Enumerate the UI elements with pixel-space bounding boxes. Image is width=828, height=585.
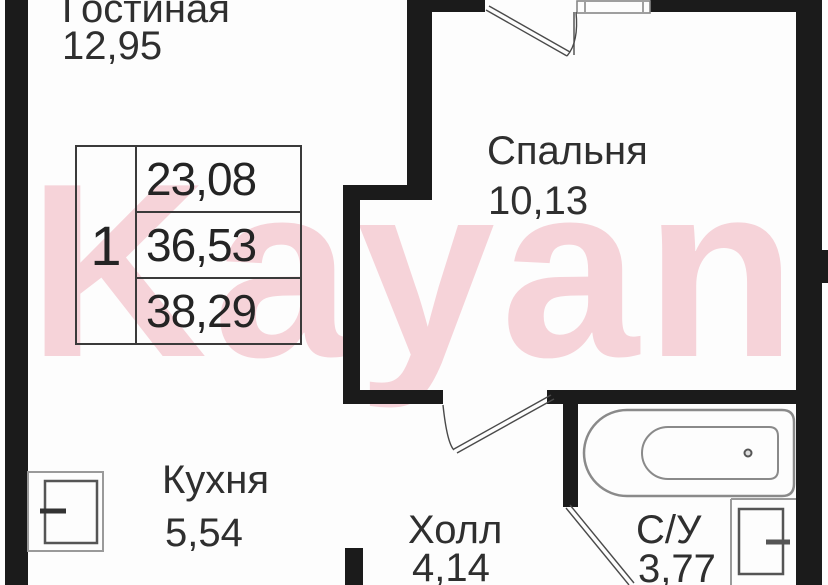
bathroom-door-swing-icon: [566, 505, 634, 585]
areas-column: 23,08 36,53 38,29: [137, 147, 300, 343]
bathtub-icon: [584, 410, 794, 496]
right-wall: [796, 0, 822, 585]
living-bedroom-divider-wall: [343, 185, 360, 404]
bathroom-area: 3,77: [638, 547, 716, 585]
apartment-info-table: 1 23,08 36,53 38,29: [75, 145, 302, 345]
living-room-area: 12,95: [62, 24, 162, 68]
area-value-row: 36,53: [137, 213, 300, 279]
floor-plan: Kayan: [0, 0, 828, 585]
top-wall-right: [650, 0, 797, 12]
right-wall-notch: [818, 250, 828, 283]
area-value-row: 23,08: [137, 147, 300, 213]
bedroom-door-swing-icon: [443, 395, 554, 453]
hall-area: 4,14: [412, 546, 490, 585]
window-icon: [577, 1, 650, 13]
bedroom-left-wall: [407, 0, 432, 200]
stove-icon: [28, 472, 103, 551]
bedroom-area: 10,13: [488, 179, 588, 223]
kitchen-label: Кухня: [162, 458, 269, 502]
bathroom-left-wall: [563, 404, 578, 507]
area-value-row: 38,29: [137, 279, 300, 343]
hall-top-wall-left: [343, 390, 443, 404]
bathroom-label: С/У: [636, 508, 701, 552]
kitchen-area: 5,54: [165, 511, 243, 555]
kitchen-hall-wall: [345, 548, 363, 585]
balcony-door-swing-icon: [486, 6, 577, 56]
washing-machine-icon: [731, 499, 796, 585]
hall-top-wall-right: [547, 390, 797, 404]
bathtub-drain: [745, 450, 752, 457]
top-wall-left: [432, 0, 485, 12]
left-wall: [5, 0, 28, 585]
rooms-count-cell: 1: [77, 147, 137, 343]
bedroom-label: Спальня: [487, 129, 648, 173]
